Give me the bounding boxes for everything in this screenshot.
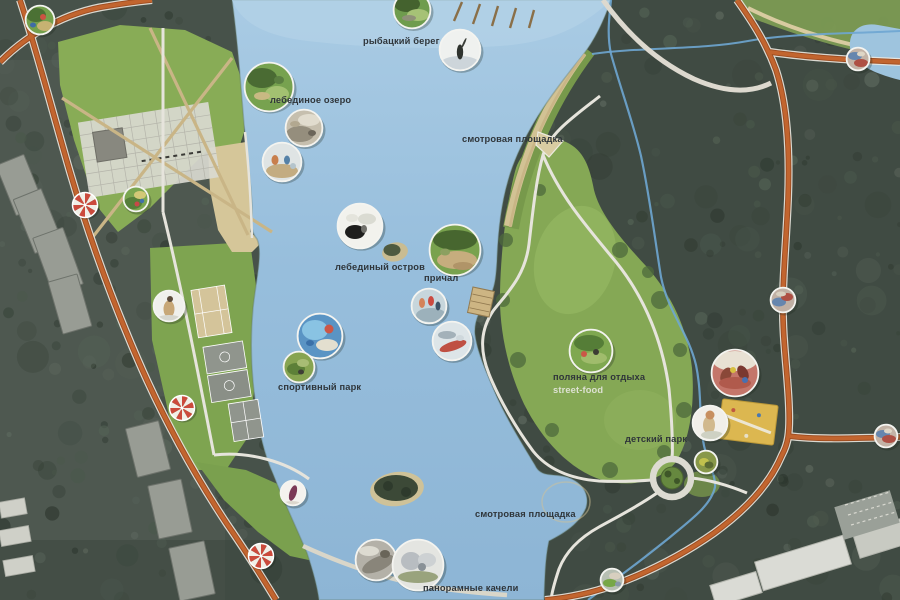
park-masterplan-map: рыбацкий береглебединое озеросмотровая п…: [0, 0, 900, 600]
pier-dock: [468, 287, 495, 317]
map-label-swan-lake: лебединое озеро: [270, 95, 351, 105]
map-label-rest-glade: поляна для отдыха: [553, 372, 646, 382]
map-label-viewpoint-south: смотровая площадка: [475, 509, 576, 519]
map-label-panoramic-swings: панорамные качели: [423, 583, 519, 593]
map-label-children-park: детский парк: [625, 434, 687, 444]
map-label-pier: причал: [424, 273, 458, 283]
map-label-street-food: street-food: [553, 385, 603, 395]
map-label-fishing-shore: рыбацкий берег: [363, 36, 440, 46]
map-label-sports-park: спортивный парк: [278, 382, 361, 392]
map-label-swan-island: лебединый остров: [335, 262, 425, 272]
map-label-viewpoint-north: смотровая площадка: [462, 134, 563, 144]
plaza-building: [93, 128, 127, 162]
